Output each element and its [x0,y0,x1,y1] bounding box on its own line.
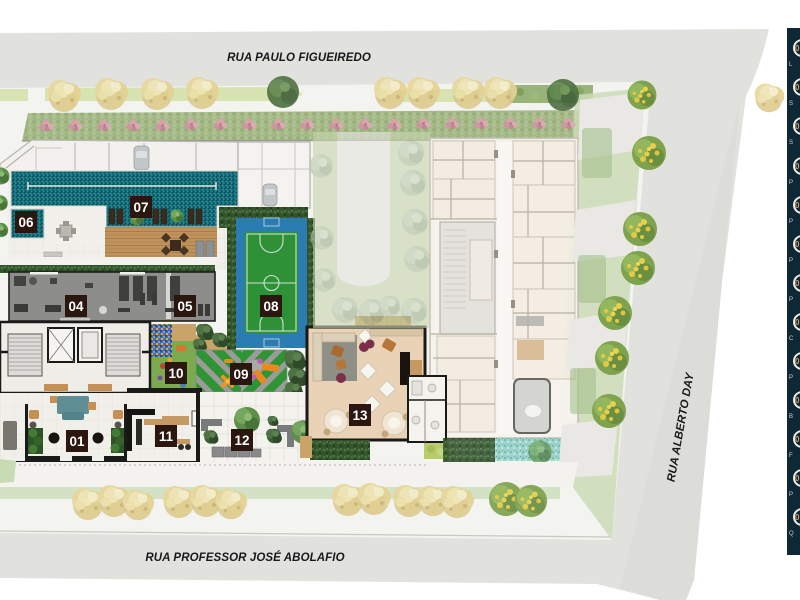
svg-text:07: 07 [133,200,148,215]
svg-text:0: 0 [795,201,800,210]
svg-text:B: B [789,414,793,420]
svg-text:P: P [789,375,793,381]
svg-text:10: 10 [168,366,183,381]
svg-text:0: 0 [795,44,800,53]
svg-text:0: 0 [795,474,800,483]
svg-text:P: P [789,219,793,225]
svg-text:0: 0 [795,83,800,92]
svg-text:13: 13 [352,408,368,423]
svg-text:0: 0 [795,396,800,405]
svg-text:05: 05 [177,299,193,314]
svg-text:S: S [789,140,793,146]
svg-text:11: 11 [159,429,174,444]
svg-text:P: P [789,297,793,303]
svg-text:0: 0 [795,279,800,288]
svg-text:S: S [789,101,793,107]
svg-text:09: 09 [233,367,248,382]
svg-text:RUA PAULO FIGUEIREDO: RUA PAULO FIGUEIREDO [227,52,371,64]
svg-text:RUA PROFESSOR JOSÉ ABOLAFIO: RUA PROFESSOR JOSÉ ABOLAFIO [145,551,344,564]
svg-text:C: C [789,336,794,342]
svg-text:01: 01 [69,434,85,449]
svg-text:0: 0 [795,435,800,444]
svg-text:P: P [789,180,793,186]
svg-text:0: 0 [795,240,800,249]
svg-text:0: 0 [795,318,800,327]
svg-text:P: P [789,492,793,498]
svg-text:04: 04 [68,299,84,314]
svg-text:Q: Q [789,531,794,537]
svg-text:0: 0 [795,513,800,522]
svg-text:06: 06 [18,215,34,230]
svg-text:08: 08 [263,299,279,314]
svg-text:P: P [789,258,793,264]
svg-text:0: 0 [795,122,800,131]
svg-text:12: 12 [234,433,249,448]
svg-text:0: 0 [795,357,800,366]
svg-text:F: F [789,453,793,459]
svg-text:0: 0 [795,162,800,171]
